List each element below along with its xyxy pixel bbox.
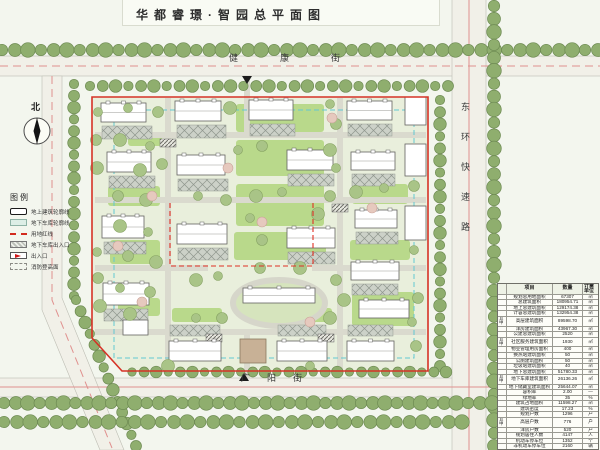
- row-group: [498, 359, 507, 364]
- legend-item-label: 用地红线: [31, 230, 53, 238]
- building-detail: [121, 214, 125, 217]
- row-unit: 户: [583, 412, 598, 417]
- row-label: 机动车停车位: [507, 439, 553, 444]
- legend-items: 地上建筑轮廓线地下车库轮廓线用地红线地下车库出入口出入口消防登高面: [10, 206, 102, 272]
- building-detail: [277, 286, 281, 289]
- street-tree: [11, 416, 24, 429]
- street-tree: [207, 416, 220, 429]
- street-tree: [320, 367, 330, 377]
- street-tree: [97, 81, 108, 92]
- building-detail: [356, 150, 360, 153]
- row-unit: ㎡: [583, 327, 598, 332]
- site-tree: [194, 192, 203, 201]
- street-tree: [463, 44, 474, 55]
- street-tree: [203, 44, 216, 57]
- street-tree: [131, 441, 142, 450]
- street-tree: [68, 101, 81, 114]
- street-tree: [435, 204, 444, 213]
- street-tree: [392, 81, 401, 90]
- header-group: [498, 284, 507, 294]
- street-tree: [435, 288, 446, 299]
- row-unit: ㎡: [583, 306, 598, 311]
- row-group: [498, 311, 507, 316]
- street-tree: [436, 44, 449, 57]
- row-unit: ㎡: [583, 375, 598, 384]
- street-tree: [301, 80, 314, 93]
- street-tree: [0, 44, 8, 55]
- building-detail: [369, 339, 373, 342]
- building-detail: [218, 222, 222, 225]
- site-tree: [94, 108, 103, 117]
- street-tree: [92, 396, 107, 411]
- building-detail: [182, 222, 186, 225]
- site-tree: [224, 102, 237, 115]
- building-detail: [216, 153, 220, 156]
- building-detail: [137, 101, 141, 104]
- site-tree: [332, 164, 341, 173]
- building-outline-icon: [10, 208, 27, 215]
- row-value: 2160: [553, 444, 583, 449]
- street-tree: [435, 313, 444, 322]
- row-label: 公建总建筑面积: [507, 332, 553, 337]
- street-tree: [502, 44, 513, 55]
- row-label: 绿地率: [507, 396, 553, 401]
- street-tree: [487, 63, 502, 78]
- street-tree: [69, 115, 78, 124]
- street-tree: [195, 416, 206, 427]
- building-detail: [254, 98, 258, 101]
- row-label: 洋房建筑面积: [507, 327, 553, 332]
- site-tree: [114, 220, 127, 233]
- street-tree: [99, 363, 108, 372]
- street-tree: [404, 366, 416, 378]
- row-unit: %: [583, 407, 598, 412]
- building-detail: [382, 298, 386, 301]
- site-tree: [255, 263, 266, 274]
- site-tree: [326, 100, 335, 109]
- row-group: 其中: [498, 375, 507, 384]
- street-tree: [434, 336, 447, 349]
- building-detail: [385, 339, 389, 342]
- street-tree: [364, 416, 377, 429]
- street-tree: [176, 43, 191, 58]
- street-tree: [339, 80, 352, 93]
- legend-title: 图例: [10, 192, 102, 203]
- row-group: [498, 439, 507, 444]
- street-tree: [487, 219, 502, 234]
- header-unit: 计量单位: [583, 284, 598, 294]
- fire-zone-icon: [10, 263, 27, 270]
- row-label: 容积率: [507, 390, 553, 395]
- row-unit: 户: [583, 418, 598, 427]
- street-tree: [431, 81, 440, 90]
- street-tree: [68, 172, 81, 185]
- header-amount: 数量: [553, 284, 583, 294]
- building-detail: [292, 148, 296, 151]
- street-tree: [332, 366, 344, 378]
- site-tree: [250, 190, 263, 203]
- site-tree: [144, 228, 153, 237]
- street-tree: [435, 132, 444, 141]
- street-tree: [271, 396, 286, 411]
- street-tree: [435, 252, 446, 263]
- row-label: 高层户数: [507, 418, 553, 427]
- fire-lane-area: [102, 126, 152, 139]
- row-unit: ㎡: [583, 338, 598, 347]
- street-tree: [306, 396, 321, 411]
- building-detail: [199, 153, 203, 156]
- site-tree: [153, 107, 164, 118]
- street-tree: [378, 396, 393, 411]
- row-value: 129174.38: [553, 306, 583, 311]
- building-detail: [292, 226, 296, 229]
- street-tree: [212, 367, 222, 377]
- row-label: 规划总用地面积: [507, 295, 553, 300]
- site-tree: [214, 272, 223, 281]
- table-row: 其中地下车库建筑面积26136.26㎡: [498, 375, 598, 385]
- row-value: 51780.33: [553, 370, 583, 375]
- site-plan-sheet: 华都睿璟·智园总平面图 健康街 东环快速路 广阳街 北 图例 地上建筑轮廓线地下…: [0, 0, 600, 450]
- street-tree: [488, 51, 501, 64]
- row-label: 建筑占地面积: [507, 401, 553, 406]
- street-tree: [435, 240, 444, 249]
- row-value: 43967.30: [553, 327, 583, 332]
- street-tree: [0, 397, 10, 408]
- row-value: 25644.07: [553, 385, 583, 390]
- row-group: [498, 412, 507, 417]
- legend-item-label: 地下车库出入口: [31, 241, 70, 249]
- street-tree: [246, 416, 259, 429]
- street-tree: [69, 90, 80, 101]
- street-tree: [223, 366, 235, 378]
- red-line-icon: [10, 233, 27, 235]
- table-header-row: 项目 数量 计量单位: [498, 284, 598, 295]
- street-tree: [327, 81, 338, 92]
- row-value: 50: [553, 359, 583, 364]
- garage-entry-area: [160, 139, 176, 147]
- street-tree: [449, 396, 464, 411]
- street-tree: [187, 366, 199, 378]
- street-tree: [434, 154, 447, 167]
- street-tree: [89, 416, 102, 429]
- flowering-tree: [257, 217, 267, 227]
- street-tree: [186, 80, 199, 93]
- row-label: 规划户数: [507, 412, 553, 417]
- street-tree: [315, 81, 324, 90]
- site-tree: [408, 318, 417, 327]
- street-tree: [21, 43, 36, 58]
- building-detail: [373, 260, 377, 263]
- building-detail: [142, 150, 146, 153]
- street-tree: [352, 416, 363, 427]
- fire-lane-area: [250, 124, 295, 136]
- street-tree: [368, 366, 380, 378]
- site-tree: [190, 274, 203, 287]
- site-tree: [294, 262, 307, 275]
- site-tree: [257, 141, 268, 152]
- street-tree: [86, 44, 99, 57]
- row-group: [498, 353, 507, 358]
- site-tree: [257, 235, 268, 246]
- street-tree: [62, 415, 77, 430]
- street-tree: [234, 416, 245, 427]
- row-value: 4147: [553, 433, 583, 438]
- row-group: [498, 444, 507, 449]
- street-tree: [101, 415, 116, 430]
- street-tree: [35, 44, 46, 55]
- street-tree: [435, 179, 446, 190]
- building-detail: [388, 208, 392, 211]
- street-name-right: 东环快速路: [459, 102, 472, 252]
- site-tree: [338, 294, 351, 307]
- site-tree: [409, 181, 420, 192]
- street-tree: [488, 117, 499, 128]
- building-detail: [269, 98, 273, 101]
- row-label: 地下储藏室建筑面积: [507, 385, 553, 390]
- street-tree: [435, 349, 444, 358]
- street-tree: [325, 416, 338, 429]
- street-tree: [141, 397, 152, 408]
- row-unit: ㎡: [583, 370, 598, 375]
- street-tree: [116, 416, 127, 427]
- row-group: [498, 364, 507, 369]
- site-tree: [146, 142, 155, 151]
- street-name-bottom: 广阳街: [241, 371, 319, 384]
- row-value: 180954.71: [553, 300, 583, 305]
- row-label: 社区服务建筑面积: [507, 338, 553, 347]
- row-group: [498, 396, 507, 401]
- building-detail: [196, 99, 200, 102]
- street-tree: [137, 43, 152, 58]
- street-tree: [34, 397, 45, 408]
- street-tree: [109, 80, 122, 93]
- street-tree: [416, 80, 429, 93]
- row-unit: %: [583, 396, 598, 401]
- street-tree: [139, 367, 149, 377]
- street-tree: [385, 44, 396, 55]
- street-tree: [23, 415, 38, 430]
- site-tree: [134, 164, 147, 177]
- street-tree: [212, 81, 223, 92]
- row-group: [498, 428, 507, 433]
- row-unit: 户: [583, 428, 598, 433]
- site-tree: [221, 195, 232, 206]
- building-detail: [112, 150, 116, 153]
- legend-item: 地下车库出入口: [10, 239, 102, 250]
- garage-entry-icon: [10, 241, 27, 248]
- site-tree: [331, 275, 342, 286]
- row-group: [498, 407, 507, 412]
- street-tree: [487, 258, 502, 273]
- row-value: 1352: [553, 439, 583, 444]
- street-tree: [215, 43, 230, 58]
- street-tree: [75, 306, 86, 317]
- site-tree: [192, 314, 201, 323]
- fire-lane-area: [288, 252, 335, 264]
- street-tree: [488, 207, 501, 220]
- street-tree: [263, 80, 276, 93]
- row-group: [498, 300, 507, 305]
- street-tree: [488, 90, 501, 103]
- street-tree: [442, 416, 455, 429]
- north-arrow-icon: [24, 118, 50, 144]
- building-detail: [107, 214, 111, 217]
- fire-lane-area: [356, 232, 398, 244]
- street-tree: [98, 43, 113, 58]
- plan-title: 华都睿璟·智园总平面图: [136, 6, 326, 23]
- building-detail: [282, 339, 286, 342]
- site-tree: [350, 186, 363, 199]
- fire-lane-area: [348, 124, 392, 136]
- street-tree: [488, 39, 499, 50]
- street-tree: [488, 12, 501, 25]
- street-tree: [376, 415, 391, 430]
- street-tree: [200, 81, 209, 90]
- row-value: 89598.70: [553, 317, 583, 326]
- street-tree: [191, 44, 202, 55]
- street-tree: [9, 44, 22, 57]
- building-detail: [352, 339, 356, 342]
- row-label: 非机动车停车位: [507, 444, 553, 449]
- street-tree: [434, 227, 447, 240]
- street-tree: [342, 396, 357, 411]
- street-tree: [592, 44, 600, 57]
- street-tree: [127, 430, 136, 439]
- garage-outline-icon: [10, 219, 27, 226]
- row-group: [498, 390, 507, 395]
- row-group: 其中: [498, 338, 507, 347]
- fire-lane-area: [352, 174, 395, 186]
- row-label: 总建筑面积: [507, 300, 553, 305]
- fire-lane-area: [288, 174, 334, 186]
- flowering-tree: [223, 163, 233, 173]
- street-tree: [404, 81, 415, 92]
- flowering-tree: [137, 297, 147, 307]
- site-tree: [410, 246, 419, 255]
- building-detail: [106, 101, 110, 104]
- row-unit: ㎡: [583, 332, 598, 337]
- row-value: 67307: [553, 295, 583, 300]
- row-value: 776: [553, 418, 583, 427]
- row-unit: 个: [583, 439, 598, 444]
- street-tree: [69, 79, 78, 88]
- street-tree: [526, 43, 541, 58]
- row-label: 垃圾站建筑面积: [507, 364, 553, 369]
- street-tree: [487, 141, 502, 156]
- street-tree: [320, 397, 331, 408]
- street-tree: [141, 415, 156, 430]
- street-tree: [148, 80, 161, 93]
- street-tree: [435, 277, 444, 286]
- row-unit: ㎡: [583, 401, 598, 406]
- street-tree: [85, 329, 94, 338]
- street-tree: [85, 81, 94, 90]
- row-group: [498, 370, 507, 375]
- building-detail: [212, 99, 216, 102]
- building-detail: [390, 260, 394, 263]
- legend-item: 出入口: [10, 250, 102, 261]
- street-tree: [50, 416, 63, 429]
- row-unit: ㎡: [583, 385, 598, 390]
- street-tree: [430, 416, 441, 427]
- street-tree: [285, 416, 298, 429]
- legend-item-label: 出入口: [31, 252, 48, 260]
- indicator-table: 项目 数量 计量单位 规划总用地面积67307㎡总建筑面积180954.71㎡地…: [497, 283, 599, 450]
- street-tree: [337, 415, 352, 430]
- street-tree: [128, 396, 143, 411]
- street-tree: [487, 180, 502, 195]
- street-tree: [224, 80, 237, 93]
- street-tree: [434, 118, 447, 131]
- row-group: [498, 327, 507, 332]
- street-tree: [487, 102, 502, 117]
- legend-item-label: 地下车库轮廓线: [31, 219, 70, 227]
- street-tree: [0, 416, 10, 427]
- north-label: 北: [31, 100, 40, 113]
- street-tree: [251, 81, 262, 92]
- street-tree: [69, 150, 78, 159]
- building-detail: [127, 150, 131, 153]
- street-tree: [219, 415, 234, 430]
- street-tree: [488, 233, 499, 244]
- site-tree: [217, 313, 228, 324]
- site-tree: [145, 287, 156, 298]
- street-tree: [435, 324, 446, 335]
- building-detail: [371, 150, 375, 153]
- row-value: 17.23: [553, 407, 583, 412]
- table-row: 其中社区服务建筑面积1930㎡: [498, 338, 598, 348]
- street-tree: [429, 367, 439, 377]
- street-tree: [79, 316, 92, 329]
- street-tree: [164, 44, 177, 57]
- building-detail: [368, 99, 372, 102]
- street-tree: [413, 396, 428, 411]
- street-tree: [125, 44, 138, 57]
- row-value: 400: [553, 347, 583, 352]
- fire-lane-area: [178, 248, 228, 260]
- street-tree: [68, 278, 81, 291]
- street-tree: [488, 78, 499, 89]
- building-detail: [364, 298, 368, 301]
- building-detail: [212, 339, 216, 342]
- row-group: [498, 306, 507, 311]
- street-tree: [435, 95, 444, 104]
- fire-lane-area: [178, 179, 228, 191]
- street-tree: [357, 367, 367, 377]
- row-value: 26136.26: [553, 375, 583, 384]
- row-label: 洋房户数: [507, 428, 553, 433]
- street-tree: [258, 415, 273, 430]
- building-detail: [326, 226, 330, 229]
- street-tree: [440, 366, 452, 378]
- street-tree: [345, 368, 353, 376]
- row-label: 地下总建筑面积: [507, 370, 553, 375]
- row-value: 35: [553, 396, 583, 401]
- street-tree: [435, 168, 444, 177]
- building-detail: [140, 281, 144, 284]
- street-tree: [273, 416, 284, 427]
- legend-item-label: 消防登高面: [31, 263, 59, 271]
- street-tree: [150, 366, 162, 378]
- row-label: 公厕建筑面积: [507, 359, 553, 364]
- street-tree: [199, 396, 214, 411]
- building-detail: [383, 99, 387, 102]
- street-tree: [553, 44, 566, 57]
- street-tree: [69, 126, 80, 137]
- row-value: 50: [553, 353, 583, 358]
- row-value: 1296: [553, 412, 583, 417]
- street-tree: [434, 263, 447, 276]
